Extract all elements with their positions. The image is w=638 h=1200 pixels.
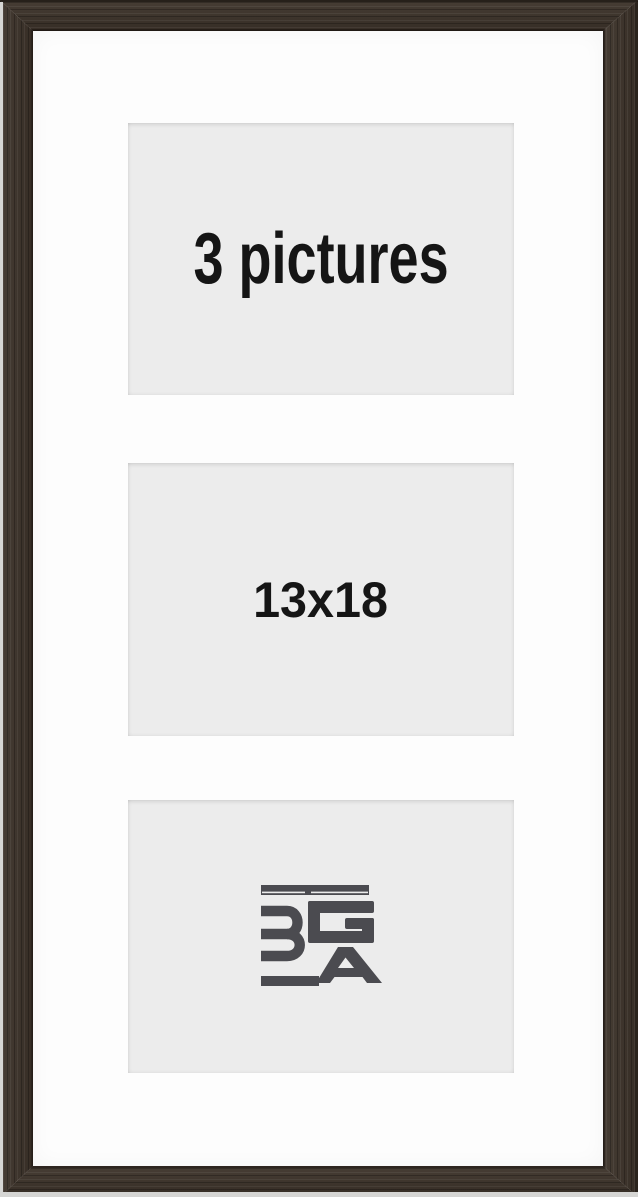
- frame-outer-edge-left: [0, 2, 3, 1194]
- frame-molding-left: [0, 0, 33, 1197]
- photo-opening-middle: 13x18: [128, 463, 514, 736]
- frame-molding-right: [603, 0, 638, 1197]
- frame-outer-edge-top: [0, 0, 638, 2]
- photo-opening-top: 3 pictures: [128, 123, 514, 395]
- frame-molding-top: [0, 0, 638, 31]
- bga-logo: [261, 884, 382, 990]
- opening-middle-label: 13x18: [254, 575, 389, 625]
- mat-board: 3 pictures 13x18: [33, 31, 603, 1166]
- photo-opening-bottom: [128, 800, 514, 1073]
- product-photo: 3 pictures 13x18: [0, 0, 638, 1200]
- opening-top-label: 3 pictures: [193, 223, 448, 295]
